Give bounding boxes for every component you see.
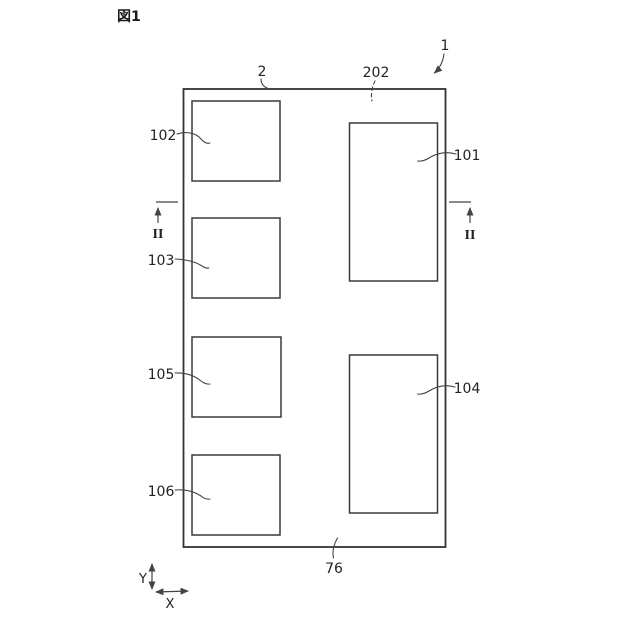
- coordinate-axes: Y X: [138, 564, 188, 612]
- ref-label-105: 105: [148, 367, 175, 383]
- ref-label-2: 2: [258, 64, 267, 80]
- ref-label-76: 76: [325, 561, 343, 577]
- patent-figure: 図1 1 2 202 102 103 105 106 101: [0, 0, 640, 640]
- block-102-rect: [192, 101, 280, 181]
- block-103-rect: [192, 218, 280, 298]
- leader-line-104: [418, 386, 456, 394]
- section-marker-left-label: II: [153, 227, 164, 242]
- leader-line-2: [261, 79, 270, 89]
- figure-drawing: 図1 1 2 202 102 103 105 106 101: [0, 0, 640, 640]
- figure-caption: 図1: [117, 9, 141, 25]
- leader-line-102: [177, 133, 210, 144]
- block-105-rect: [192, 337, 281, 417]
- ref-label-202: 202: [363, 65, 390, 81]
- ref-label-103: 103: [148, 253, 175, 269]
- block-104-rect: [350, 355, 438, 513]
- ref-label-102: 102: [150, 128, 177, 144]
- leader-arrow-1: [435, 54, 445, 73]
- x-axis-arrow: [156, 591, 188, 592]
- body-outline-rect: [184, 89, 446, 547]
- section-marker-left: II: [153, 202, 178, 242]
- leader-line-202: [371, 81, 375, 101]
- section-marker-right-label: II: [465, 228, 476, 243]
- ref-label-104: 104: [454, 381, 481, 397]
- ref-label-1: 1: [441, 38, 450, 54]
- x-axis-label: X: [166, 597, 175, 612]
- ref-label-101: 101: [454, 148, 481, 164]
- block-101-rect: [350, 123, 438, 281]
- section-marker-right: II: [449, 202, 475, 243]
- block-106-rect: [192, 455, 280, 535]
- leader-line-76: [333, 538, 338, 558]
- ref-label-106: 106: [148, 484, 175, 500]
- y-axis-label: Y: [138, 572, 147, 587]
